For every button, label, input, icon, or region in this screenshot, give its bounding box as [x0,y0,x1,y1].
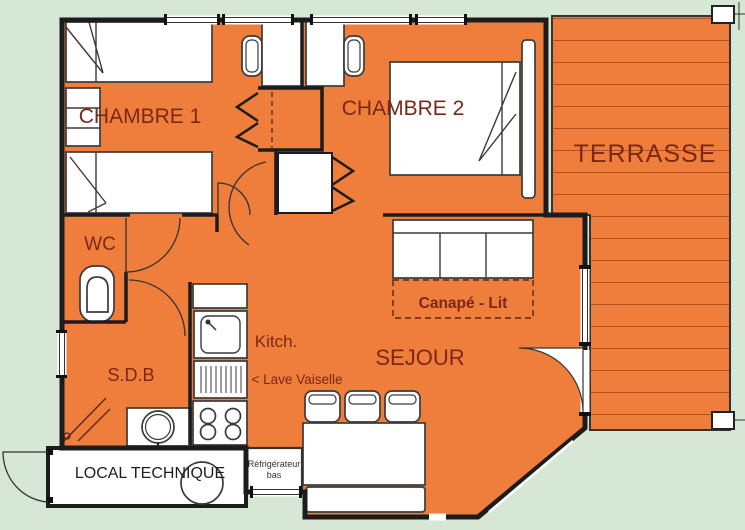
window-top-3 [310,14,412,25]
dining-table [303,423,425,485]
room-label-wc: WC [84,234,116,255]
sofa-bed [393,220,533,278]
floor-plan: TERRASSE CHAMBRE 1 CHAMBRE 2 Ca [0,0,745,530]
washbasin [142,411,174,443]
dining-bench [306,487,425,512]
annotation-canape-lit: Canapé - Lit [419,295,508,312]
window-left [56,330,67,378]
terrace-post-top [712,6,734,23]
kitchen-counter [193,284,247,308]
wc-area: WC [80,234,116,322]
floor-plan-page: TERRASSE CHAMBRE 1 CHAMBRE 2 Ca [0,0,745,530]
room-label-chambre2: CHAMBRE 2 [342,97,465,120]
window-bottom [250,486,302,498]
single-bed-top [66,22,212,82]
stove-burner [201,425,216,440]
kitchen-sink-unit [194,311,247,358]
wardrobe-chambre2 [278,153,332,213]
chair-left [242,36,262,76]
single-bed-bottom [66,152,212,213]
room-label-sejour: SEJOUR [375,345,464,370]
room-label-sdb: S.D.B [107,365,154,385]
bottom-wall-gap [429,514,446,521]
headboard [522,40,535,198]
door-jamb [579,412,591,416]
chambre-1: CHAMBRE 1 [66,22,212,213]
window-right [579,265,591,346]
room-label-local-technique: LOCAL TECHNIQUE [75,465,225,482]
stove-burner [226,409,241,424]
annotation-lave-vaiselle: < Lave Vaiselle [252,372,343,387]
room-label-kitchen: Kitch. [255,332,298,351]
stove-burner [201,409,216,424]
toilet-bowl [87,277,108,312]
window-top-4 [415,14,467,25]
annotation-refrigerateur: Réfrigérateur [248,459,301,469]
room-label-terrasse: TERRASSE [574,140,717,168]
window-top-1 [164,14,220,25]
annotation-refrigerateur-bas: bas [267,470,282,480]
fridge-area: Réfrigérateur bas [246,448,302,492]
window-top-2 [222,14,294,25]
stove-burner [226,425,241,440]
desk-left [262,20,302,86]
stove [193,401,247,445]
chair-right [344,36,364,76]
terrace-post-bottom [712,412,734,429]
desk-right [306,20,344,86]
room-label-chambre1: CHAMBRE 1 [79,105,202,128]
